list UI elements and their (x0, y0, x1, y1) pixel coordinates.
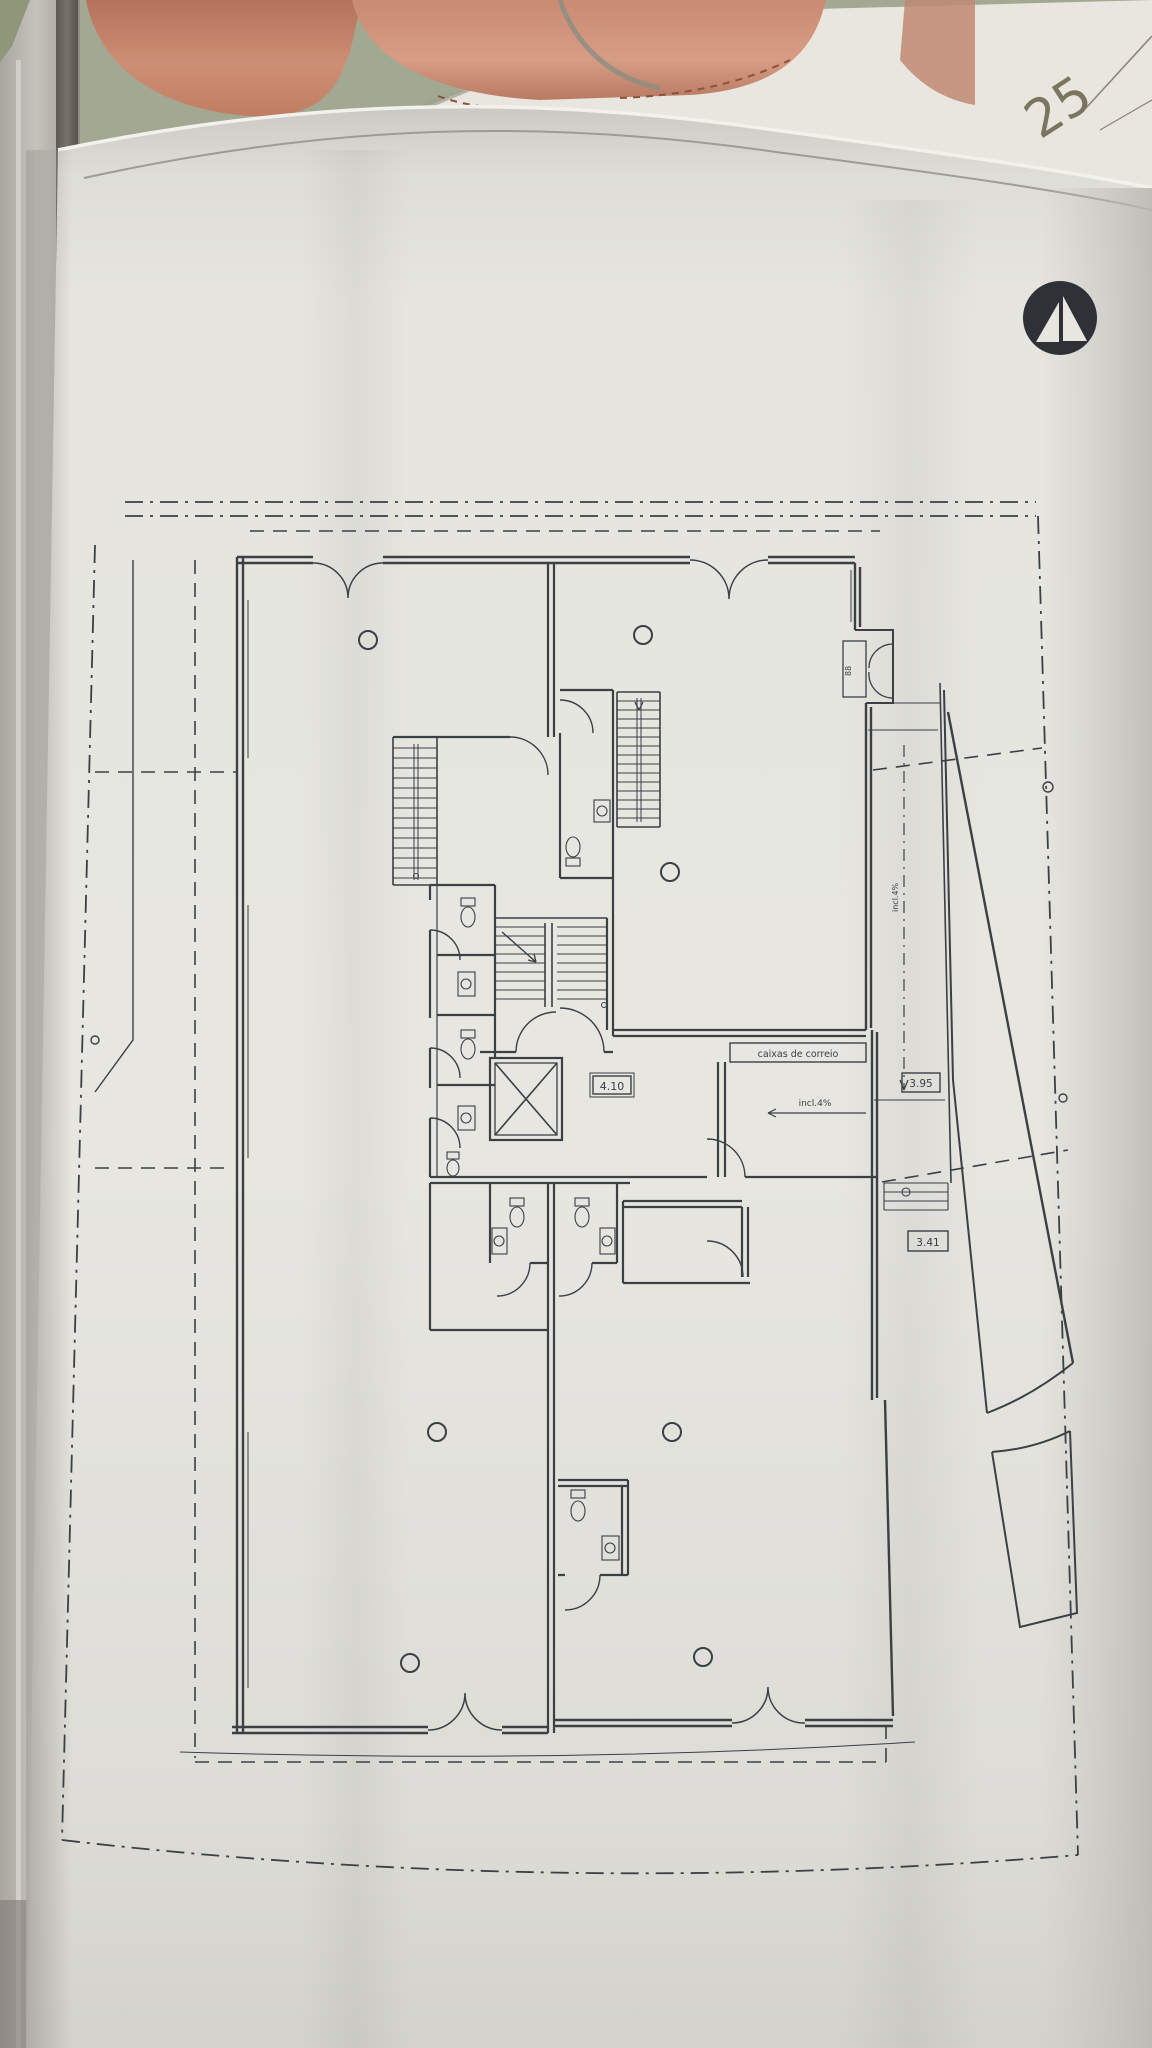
architect-logo (1023, 281, 1097, 355)
dim-entry: 3.95 (909, 1078, 932, 1090)
hall-slope-label: incl.4% (799, 1099, 832, 1109)
cabinet-code-label: 88 (844, 666, 853, 676)
mailboxes-label: caixas de correio (758, 1049, 839, 1060)
corridor-slope-label: incl.4% (891, 882, 900, 912)
dim-steps: 3.41 (916, 1237, 939, 1249)
photo-canvas: 25 (0, 0, 1152, 2048)
photo-scene: 25 (0, 0, 1152, 2048)
dim-hall: 4.10 (600, 1080, 625, 1093)
